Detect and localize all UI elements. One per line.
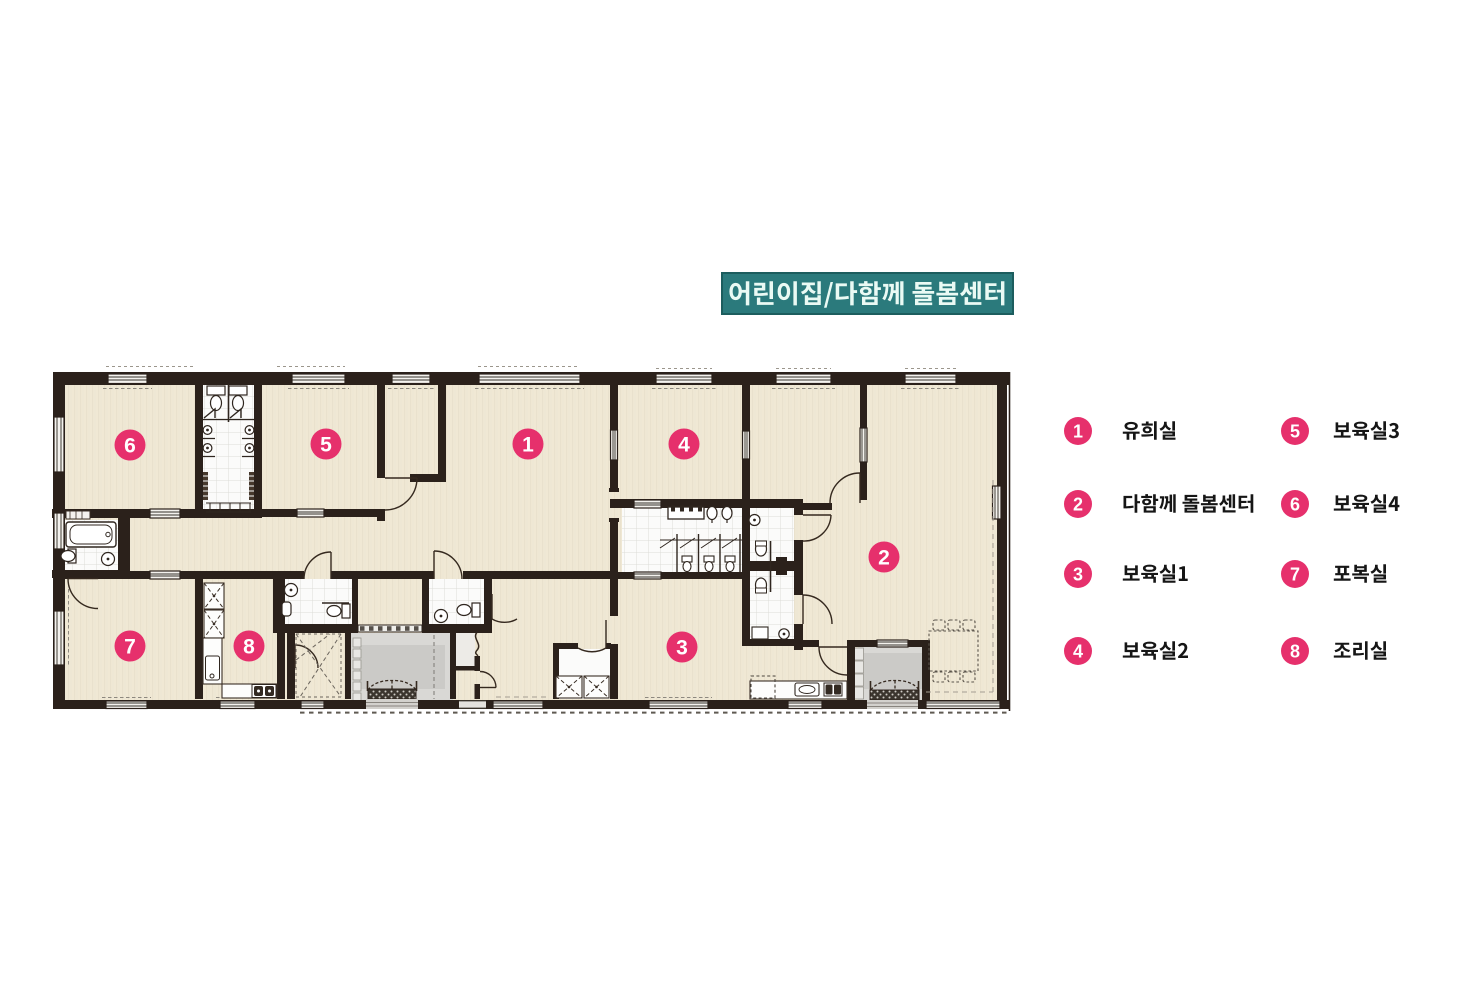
svg-text:1: 1 bbox=[1073, 421, 1083, 441]
svg-text:3: 3 bbox=[1073, 564, 1083, 584]
svg-text:5: 5 bbox=[1290, 421, 1300, 441]
svg-text:4: 4 bbox=[678, 433, 690, 456]
svg-text:8: 8 bbox=[243, 635, 255, 658]
svg-text:1: 1 bbox=[522, 433, 534, 456]
svg-text:5: 5 bbox=[320, 433, 332, 456]
svg-text:6: 6 bbox=[124, 434, 136, 457]
svg-text:7: 7 bbox=[124, 635, 136, 658]
svg-text:7: 7 bbox=[1290, 564, 1300, 584]
svg-text:6: 6 bbox=[1290, 494, 1300, 514]
svg-text:8: 8 bbox=[1290, 641, 1300, 661]
svg-text:3: 3 bbox=[676, 636, 688, 659]
svg-text:2: 2 bbox=[878, 546, 890, 569]
svg-text:4: 4 bbox=[1073, 641, 1083, 661]
svg-text:2: 2 bbox=[1073, 494, 1083, 514]
